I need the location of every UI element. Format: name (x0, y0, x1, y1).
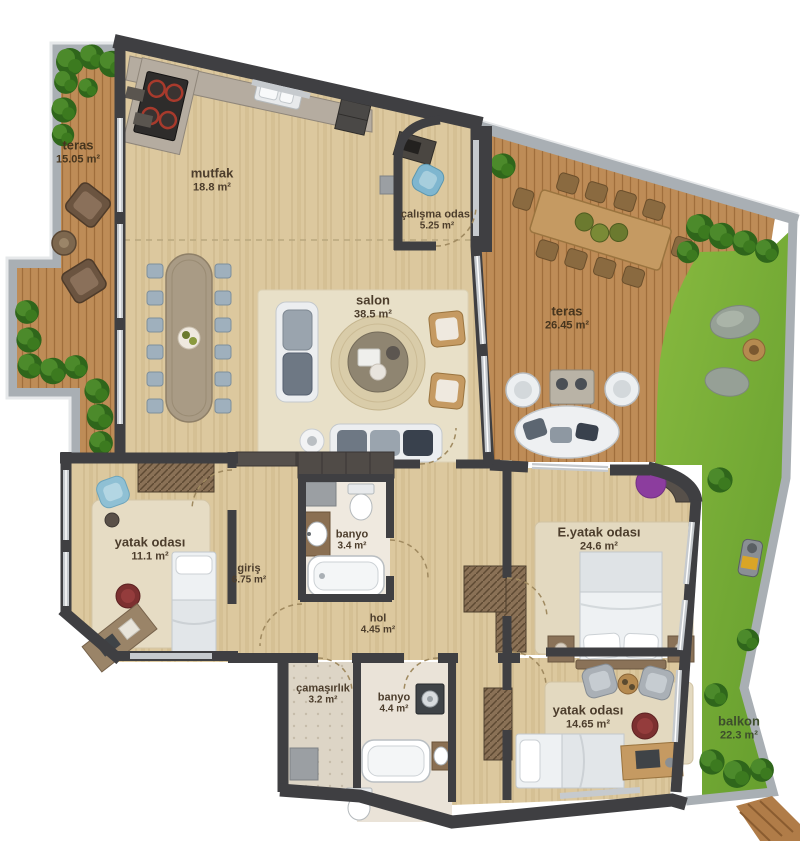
room-area: 3.4 m² (336, 541, 368, 552)
room-label-hol: hol 4.45 m² (361, 612, 395, 636)
stool (105, 513, 119, 527)
room-area: 38.5 m² (354, 308, 392, 320)
room-label-balkon: balkon 22.3 m² (718, 715, 760, 742)
room-label-e-yatak-odasi: E.yatak odası 24.6 m² (557, 526, 640, 553)
room-name: salon (356, 293, 390, 308)
room-name: çamaşırlık (296, 682, 350, 694)
left-terrace (13, 44, 125, 458)
room-name: balkon (718, 714, 760, 729)
shoe-cabinet (236, 452, 296, 466)
room-name: yatak odası (115, 535, 186, 550)
room-label-banyo-2: banyo 4.4 m² (378, 691, 410, 715)
room-name: teras (62, 138, 93, 153)
side-table (618, 674, 638, 694)
garden-walkway (736, 796, 800, 841)
room-label-teras-left: teras 15.05 m² (56, 139, 100, 166)
washing-machine (416, 684, 444, 714)
room-label-mutfak: mutfak 18.8 m² (191, 167, 234, 194)
room-label-yatak-odasi-bottom: yatak odası 14.65 m² (553, 704, 624, 731)
single-bed (172, 552, 216, 658)
room-area: 5.25 m² (401, 221, 473, 232)
floor-plan-stage: teras 15.05 m² mutfak 18.8 m² çalışma od… (0, 0, 800, 841)
room-name: banyo (378, 691, 410, 703)
armchair (428, 310, 465, 347)
room-area: 26.45 m² (545, 319, 589, 331)
room-area: 4.45 m² (361, 625, 395, 636)
room-name: E.yatak odası (557, 525, 640, 540)
room-name: mutfak (191, 166, 234, 181)
room-area: 4.4 m² (378, 704, 410, 715)
bathtub (362, 740, 430, 782)
room-area: 24.6 m² (557, 540, 640, 552)
single-bed (516, 734, 624, 788)
sink (432, 742, 450, 770)
room-name: banyo (336, 528, 368, 540)
sink-vanity (304, 512, 330, 556)
armchair (428, 372, 465, 409)
room-area: 3.2 m² (296, 695, 350, 706)
laundry-room (290, 748, 318, 780)
room-name: giriş (237, 562, 260, 574)
cabinet (304, 482, 336, 506)
room-area: 18.8 m² (191, 181, 234, 193)
garden-table-top (749, 345, 759, 355)
bathtub (308, 556, 384, 596)
room-name: yatak odası (553, 703, 624, 718)
room-label-yatak-odasi-left: yatak odası 11.1 m² (115, 536, 186, 563)
room-area: 11.1 m² (115, 550, 186, 562)
room-area: 14.65 m² (553, 718, 624, 730)
room-label-camasirlik: çamaşırlık 3.2 m² (296, 682, 350, 706)
hall-closet (464, 566, 506, 612)
room-label-giris: giriş 6.75 m² (232, 562, 266, 586)
room-area: 6.75 m² (232, 575, 266, 586)
room-name: teras (551, 304, 582, 319)
outdoor-coffee-table (550, 370, 594, 404)
room-name: hol (370, 612, 387, 624)
room-area: 22.3 m² (718, 729, 760, 741)
room-label-teras-right: teras 26.45 m² (545, 305, 589, 332)
toilet (348, 484, 374, 520)
floor-plan-canvas (0, 0, 800, 841)
terrace-side-table-top (59, 238, 69, 248)
room-area: 15.05 m² (56, 153, 100, 165)
table-bowl (178, 327, 200, 349)
room-name: çalışma odası (401, 208, 473, 220)
utility-unit (290, 748, 318, 780)
room-label-calisma-odasi: çalışma odası 5.25 m² (401, 208, 473, 232)
room-label-salon: salon 38.5 m² (354, 294, 392, 321)
room-label-banyo-1: banyo 3.4 m² (336, 528, 368, 552)
wardrobe (138, 462, 214, 492)
